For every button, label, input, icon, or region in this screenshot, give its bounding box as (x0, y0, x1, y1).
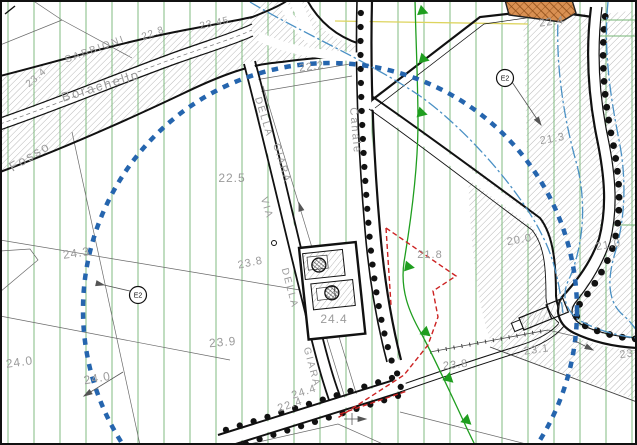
map-label-elev-21-8: 21.8 (417, 249, 442, 261)
tree-icon (324, 285, 339, 300)
cadastral-map: E2E2 SABBIONI22.823.45BorachelloFosso23.… (0, 0, 637, 445)
marker-e2-right: E2 (497, 70, 514, 87)
marker-label: E2 (134, 293, 143, 300)
marker-e2-left: E2 (130, 287, 147, 304)
tree-icon (311, 257, 326, 272)
map-label-elev-22-5: 22.5 (218, 171, 245, 185)
map-label-elev-24-4-a: 24.4 (320, 312, 347, 326)
map-canvas: E2E2 SABBIONI22.823.45BorachelloFosso23.… (0, 0, 637, 445)
map-label-elev-23-x: 23. (619, 347, 637, 361)
map-label-elev-23-9: 23.9 (208, 334, 236, 350)
marker-label: E2 (501, 76, 510, 83)
survey-point (272, 241, 277, 246)
